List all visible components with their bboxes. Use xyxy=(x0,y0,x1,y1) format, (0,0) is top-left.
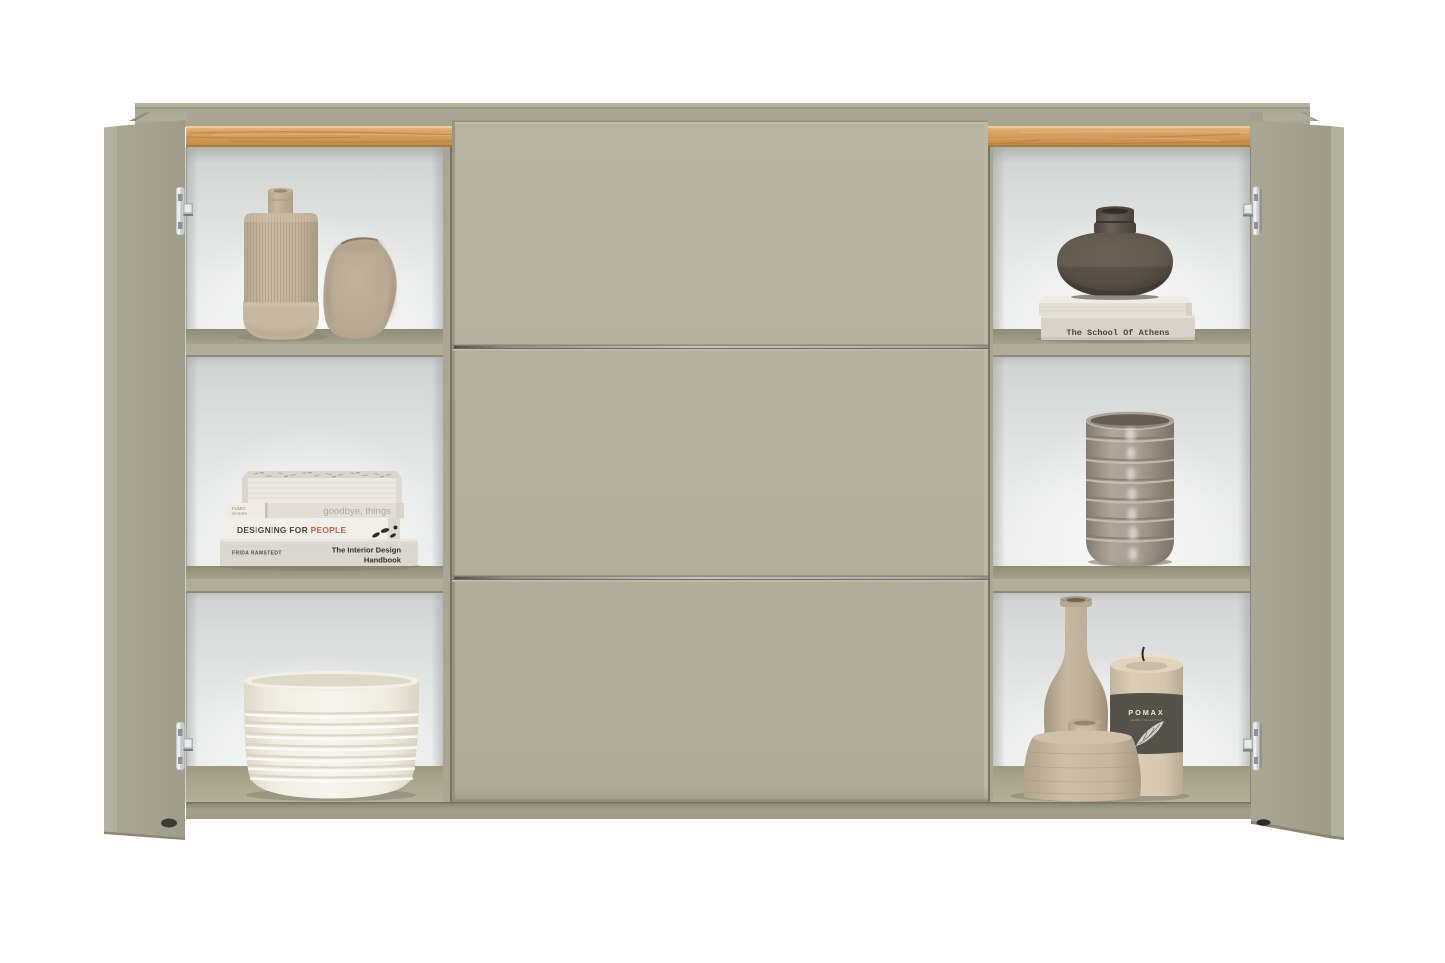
svg-text:goodbye, things: goodbye, things xyxy=(323,506,391,517)
svg-text:SASAKI: SASAKI xyxy=(232,511,247,516)
svg-text:Handbook: Handbook xyxy=(364,556,402,565)
svg-text:The School Of Athens: The School Of Athens xyxy=(1066,328,1169,338)
svg-text:HOME COLLECTION: HOME COLLECTION xyxy=(1131,718,1162,722)
svg-text:POMAX: POMAX xyxy=(1128,708,1164,717)
svg-text:DESIGNING FOR PEOPLE: DESIGNING FOR PEOPLE xyxy=(237,525,346,535)
svg-text:FRIDA RAMSTEDT: FRIDA RAMSTEDT xyxy=(232,551,282,557)
svg-text:The Interior Design: The Interior Design xyxy=(332,546,402,555)
